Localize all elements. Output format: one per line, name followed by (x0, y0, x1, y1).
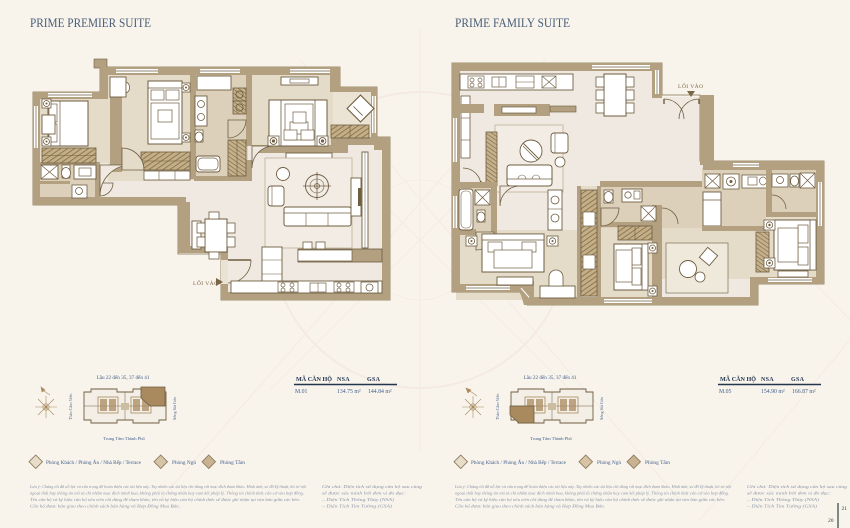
svg-text:– Diện Tích Tim Tường (GSA): – Diện Tích Tim Tường (GSA) (746, 504, 818, 509)
svg-text:134.75 m²: 134.75 m² (337, 389, 361, 395)
svg-text:Trung Tâm Thành Phố: Trung Tâm Thành Phố (103, 436, 145, 441)
svg-text:Thảo Cầm Viên: Thảo Cầm Viên (495, 393, 500, 420)
svg-text:Thảo Cầm Viên: Thảo Cầm Viên (68, 393, 73, 420)
svg-text:Phòng Khách / Phòng Ăn / Nhà B: Phòng Khách / Phòng Ăn / Nhà Bếp / Terra… (46, 458, 141, 466)
svg-text:144.84 m²: 144.84 m² (368, 389, 392, 395)
svg-text:GSA: GSA (367, 377, 381, 383)
svg-text:Lầu 22 đến 35, 37 đến 41: Lầu 22 đến 35, 37 đến 41 (524, 374, 577, 381)
svg-text:LỐI VÀO: LỐI VÀO (193, 279, 219, 287)
svg-text:Lầu 22 đến 35, 37 đến 41: Lầu 22 đến 35, 37 đến 41 (97, 374, 150, 381)
svg-text:Phòng Khách / Phòng Ăn / Nhà B: Phòng Khách / Phòng Ăn / Nhà Bếp / Terra… (471, 458, 566, 466)
svg-text:20: 20 (828, 518, 834, 524)
svg-text:sẽ được xác minh bởi đơn vị đo: sẽ được xác minh bởi đơn vị đo đạc: (747, 491, 832, 496)
svg-text:LỐI VÀO: LỐI VÀO (678, 82, 704, 90)
svg-text:Ghi chú: Diện tích sử dụng căn: Ghi chú: Diện tích sử dụng căn hộ sau cù… (322, 484, 423, 489)
svg-text:Căn hộ được bàn giao theo chín: Căn hộ được bàn giao theo chính sách bán… (455, 504, 605, 509)
svg-text:21: 21 (842, 506, 848, 512)
svg-text:– Diện Tích Tim Tường (GSA): – Diện Tích Tim Tường (GSA) (321, 504, 393, 509)
svg-text:GSA: GSA (791, 377, 805, 383)
svg-text:Ghi chú: Diện tích sử dụng căn: Ghi chú: Diện tích sử dụng căn hộ sau cù… (747, 484, 848, 489)
svg-text:Phòng Ngủ: Phòng Ngủ (597, 460, 621, 466)
svg-text:Trung Tâm Thành Phố: Trung Tâm Thành Phố (530, 436, 572, 441)
svg-text:Sông Sài Gòn: Sông Sài Gòn (172, 396, 177, 420)
svg-text:M.05: M.05 (719, 389, 732, 395)
svg-text:NSA: NSA (337, 377, 350, 383)
svg-text:MÃ CĂN HỘ: MÃ CĂN HỘ (720, 375, 756, 383)
svg-text:MÃ CĂN HỘ: MÃ CĂN HỘ (296, 375, 332, 383)
svg-text:Phòng Tắm: Phòng Tắm (645, 459, 671, 466)
svg-text:– Diện Tích Thông Thủy (NSA): – Diện Tích Thông Thủy (NSA) (746, 497, 820, 502)
svg-text:Sông Sài Gòn: Sông Sài Gòn (599, 396, 604, 420)
svg-text:sẽ được xác minh bởi đơn vị đo: sẽ được xác minh bởi đơn vị đo đạc: (322, 491, 407, 496)
svg-text:166.87 m²: 166.87 m² (792, 389, 816, 395)
svg-text:PRIME PREMIER SUITE: PRIME PREMIER SUITE (30, 16, 151, 30)
svg-text:NSA: NSA (761, 377, 774, 383)
svg-text:Phòng Ngủ: Phòng Ngủ (172, 460, 196, 466)
svg-text:Căn hộ được bàn giao theo chín: Căn hộ được bàn giao theo chính sách bán… (30, 504, 180, 509)
svg-text:M.01: M.01 (295, 389, 308, 395)
svg-text:PRIME FAMILY SUITE: PRIME FAMILY SUITE (455, 16, 570, 30)
svg-text:– Diện Tích Thông Thủy (NSA): – Diện Tích Thông Thủy (NSA) (321, 497, 395, 502)
svg-text:154.90 m²: 154.90 m² (761, 389, 785, 395)
svg-text:Phòng Tắm: Phòng Tắm (220, 459, 246, 466)
